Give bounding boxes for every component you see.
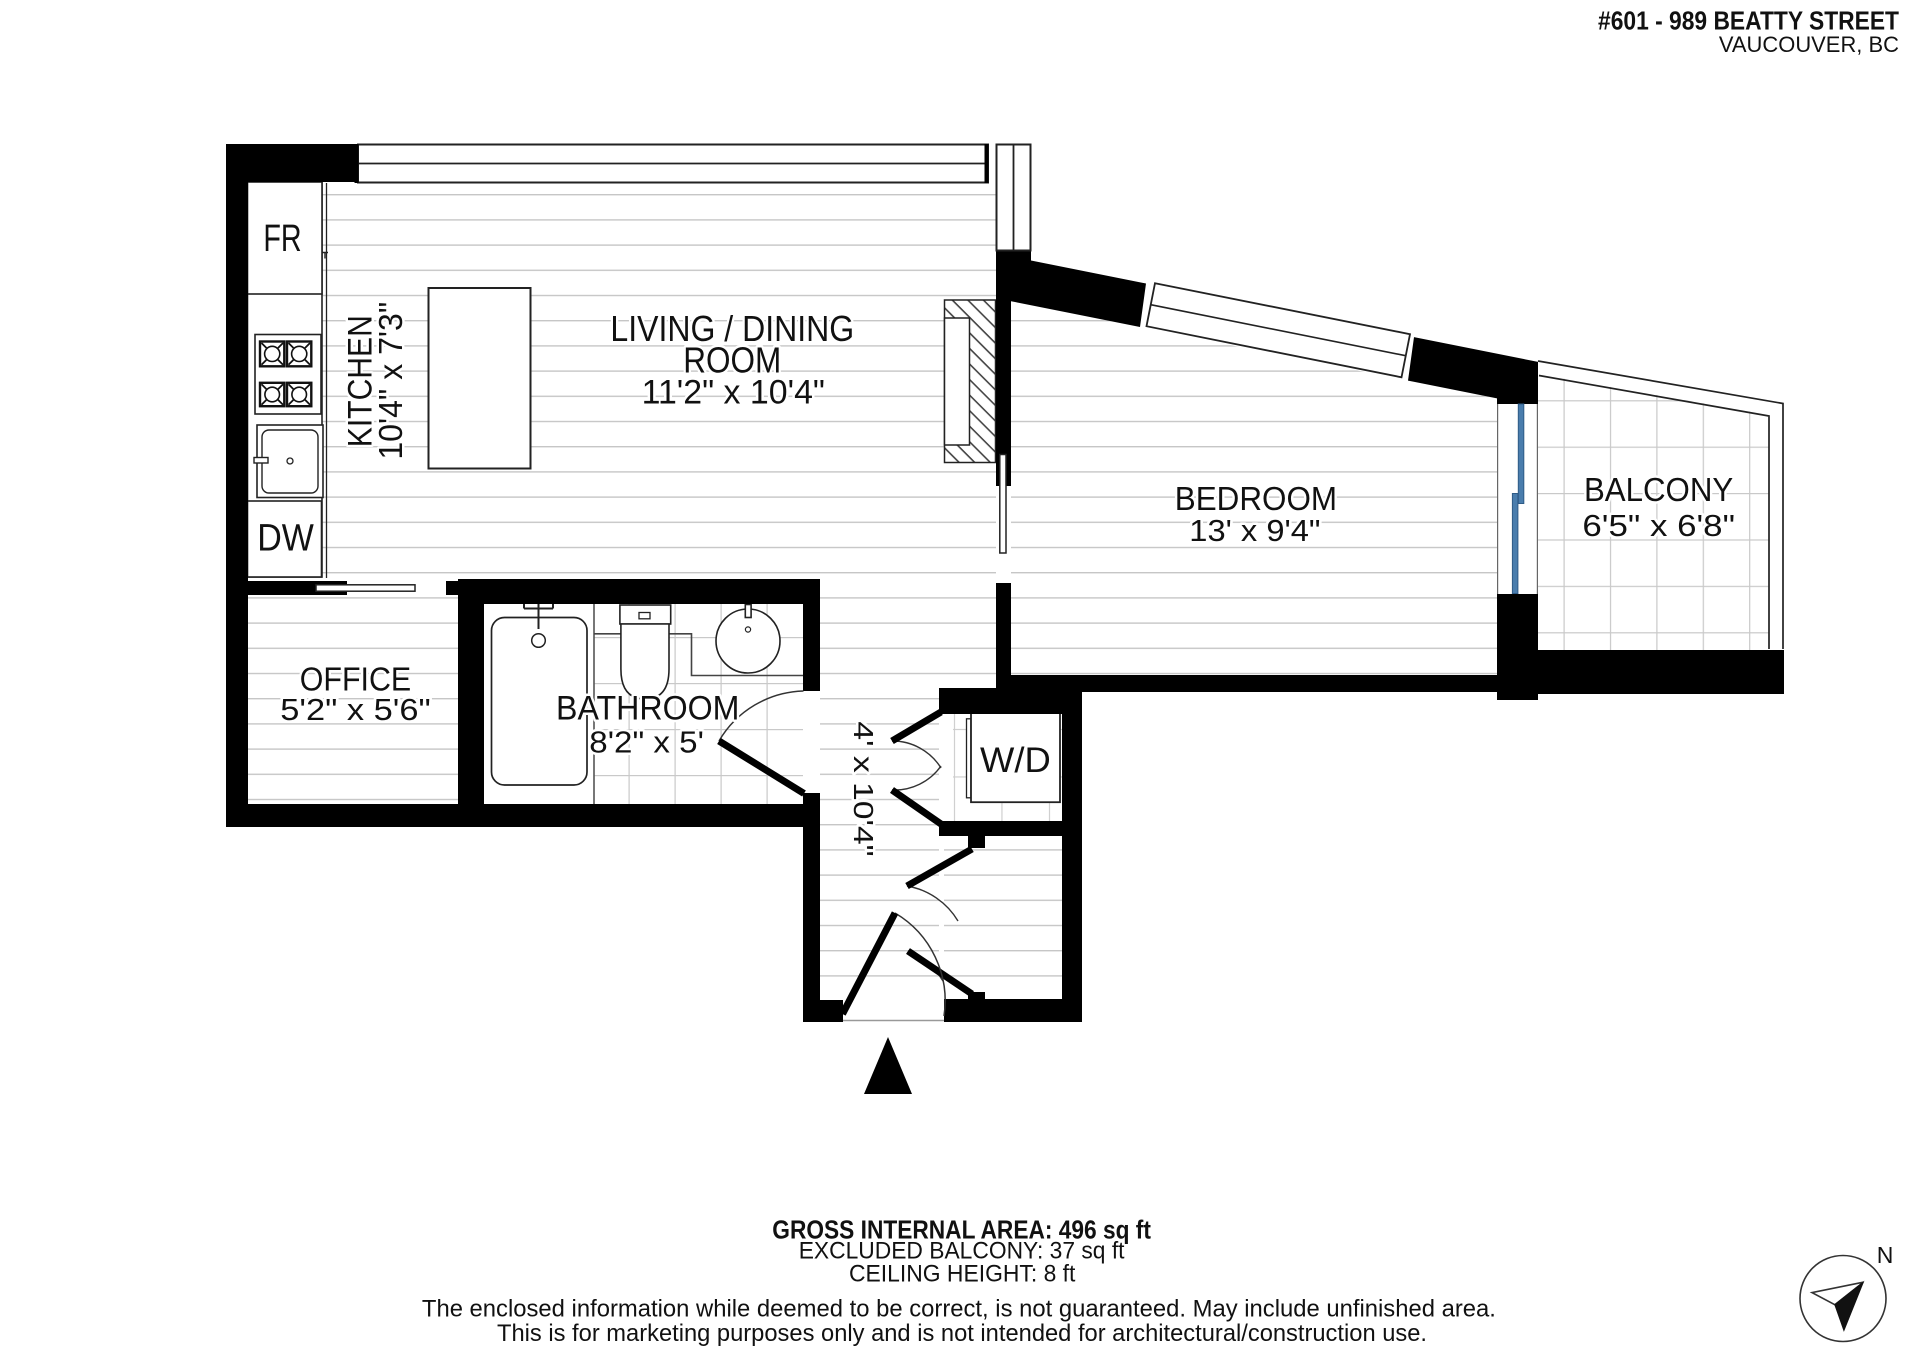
svg-text:#601 - 989 BEATTY STREET: #601 - 989 BEATTY STREET — [1598, 6, 1899, 36]
svg-text:DW: DW — [257, 518, 314, 560]
svg-text:FR: FR — [263, 218, 301, 260]
svg-text:8'2" x 5': 8'2" x 5' — [589, 725, 704, 760]
svg-text:CEILING HEIGHT: 8 ft: CEILING HEIGHT: 8 ft — [849, 1260, 1076, 1287]
svg-text:W/D: W/D — [980, 741, 1051, 780]
svg-text:10'4" x 7'3": 10'4" x 7'3" — [372, 302, 409, 460]
svg-text:VAUCOUVER, BC: VAUCOUVER, BC — [1719, 32, 1899, 57]
svg-text:This is for marketing purposes: This is for marketing purposes only and … — [497, 1320, 1427, 1347]
svg-text:BEDROOM: BEDROOM — [1175, 480, 1337, 517]
svg-text:5'2" x 5'6": 5'2" x 5'6" — [280, 692, 431, 727]
svg-text:4' x 10'4": 4' x 10'4" — [848, 721, 879, 856]
svg-text:11'2" x 10'4": 11'2" x 10'4" — [642, 373, 825, 411]
svg-text:BALCONY: BALCONY — [1584, 471, 1733, 508]
svg-text:BATHROOM: BATHROOM — [556, 689, 739, 727]
svg-text:N: N — [1877, 1242, 1894, 1268]
svg-text:13' x 9'4": 13' x 9'4" — [1189, 513, 1320, 548]
svg-text:6'5" x 6'8": 6'5" x 6'8" — [1582, 508, 1735, 543]
svg-text:The enclosed information while: The enclosed information while deemed to… — [422, 1296, 1496, 1323]
